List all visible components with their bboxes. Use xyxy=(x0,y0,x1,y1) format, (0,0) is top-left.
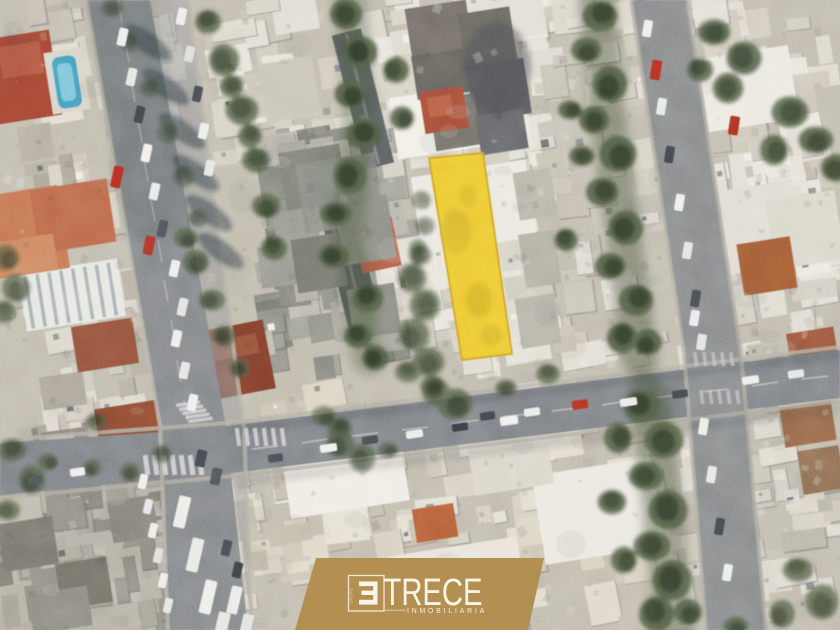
svg-text:GRUPO: GRUPO xyxy=(350,588,354,603)
svg-text:INMOBILIARIA: INMOBILIARIA xyxy=(407,606,487,615)
